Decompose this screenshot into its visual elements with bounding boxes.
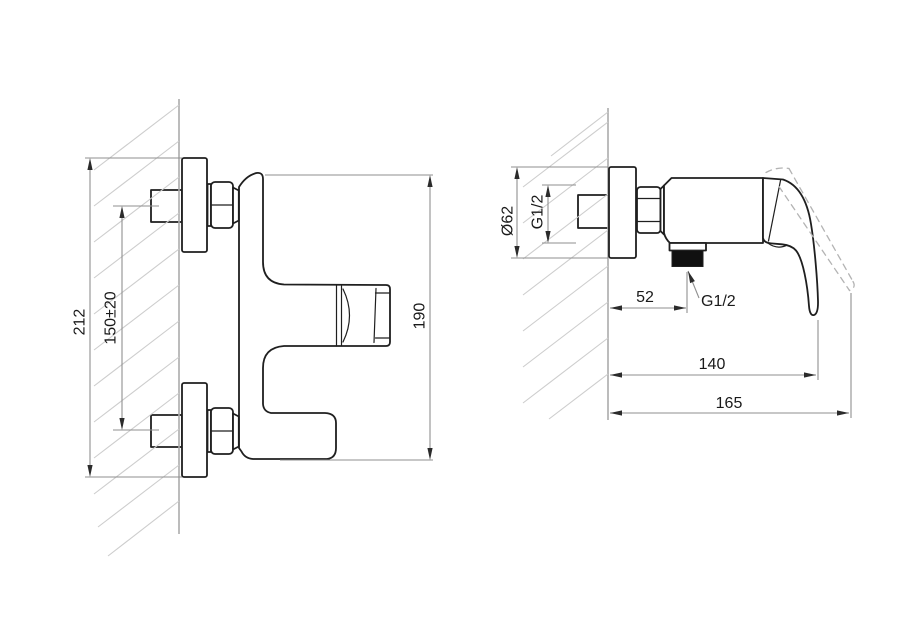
- arrowhead: [610, 410, 622, 415]
- outlet-thread-section: [672, 251, 703, 267]
- side-view: Ø62 G1/2 52 G1/2 140: [500, 108, 855, 420]
- shower-outlet: [670, 243, 707, 267]
- arrowhead: [610, 372, 622, 377]
- dashed-handle-tip: [850, 282, 855, 291]
- hatch-line: [94, 105, 179, 170]
- arrowhead: [119, 418, 124, 430]
- dimension-label-overall-height: 212: [72, 309, 89, 336]
- outlet-collar: [670, 243, 707, 251]
- arrowhead: [87, 158, 92, 170]
- dimension-inlet-thread: G1/2: [530, 185, 576, 243]
- inlet-stub-bottom: [151, 415, 182, 447]
- arrowhead: [514, 167, 519, 179]
- dimension-wall-to-outlet: 52: [610, 272, 687, 313]
- dimension-label-mounting-centers: 150±20: [103, 291, 120, 344]
- mixer-body-side: [664, 178, 763, 243]
- arrowhead: [688, 271, 695, 283]
- hatch-line: [94, 429, 179, 494]
- hatch-line: [549, 374, 608, 419]
- hatch-line: [523, 266, 608, 331]
- leader-outlet-thread: G1/2: [688, 271, 736, 310]
- arrowhead: [514, 246, 519, 258]
- dimension-label-escutcheon-diameter: Ø62: [500, 206, 517, 236]
- drawing-canvas: 212 150±20 190: [0, 0, 917, 630]
- dimension-label-wall-to-outlet: 52: [636, 289, 654, 306]
- arrowhead: [837, 410, 849, 415]
- dimension-wall-to-handle: 140: [610, 320, 818, 380]
- arrowhead: [87, 465, 92, 477]
- cone-washer: [233, 188, 239, 224]
- dimension-label-outlet-thread: G1/2: [701, 293, 736, 310]
- hatch-line: [523, 302, 608, 367]
- lever-handle-outline: [763, 178, 818, 315]
- dimension-label-wall-to-handle: 140: [699, 356, 726, 373]
- arrowhead: [427, 448, 432, 460]
- union-nut-bottom: [208, 408, 239, 454]
- mixer-body-front: [239, 173, 390, 459]
- union-nut-side: [637, 186, 664, 235]
- dashed-handle-top: [766, 168, 789, 173]
- arrowhead: [804, 372, 816, 377]
- hatch-line: [108, 501, 179, 556]
- arrowhead: [427, 175, 432, 187]
- hatch-line: [94, 213, 179, 278]
- hatch-line: [98, 465, 179, 527]
- hatch-line: [94, 357, 179, 422]
- technical-drawing: 212 150±20 190: [0, 0, 917, 630]
- dimension-mounting-centers: 150±20: [103, 206, 159, 430]
- lever-handle: [763, 178, 818, 315]
- hatch-line: [551, 112, 608, 156]
- escutcheon-bottom: [182, 383, 207, 477]
- inlet-stub-side: [578, 195, 609, 228]
- front-view: 212 150±20 190: [72, 99, 433, 556]
- hatch-line: [523, 338, 608, 403]
- union-nut-top: [208, 182, 239, 228]
- dimension-label-inlet-thread: G1/2: [530, 195, 547, 230]
- arrowhead: [674, 305, 686, 310]
- escutcheon-side: [609, 167, 636, 258]
- hex-nut: [637, 187, 661, 233]
- dimension-label-body-height: 190: [412, 303, 429, 330]
- hatch-line: [523, 230, 608, 295]
- cone-washer: [233, 414, 239, 450]
- dimension-label-wall-to-handle-open: 165: [716, 395, 743, 412]
- escutcheon-top: [182, 158, 207, 252]
- arrowhead: [610, 305, 622, 310]
- hatch-line: [523, 122, 608, 187]
- wall-hatching: [523, 112, 608, 419]
- arrowhead: [119, 206, 124, 218]
